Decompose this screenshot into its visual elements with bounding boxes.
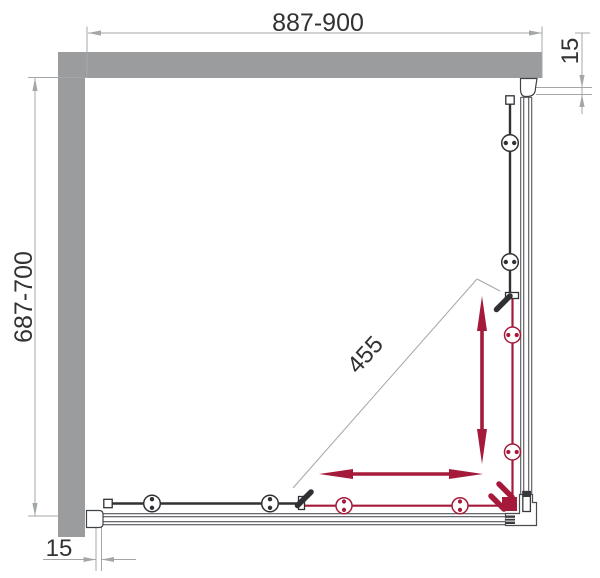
right-track <box>521 97 532 513</box>
vertical-slide-arrow <box>477 296 487 464</box>
roller <box>502 254 519 271</box>
roller <box>505 327 521 343</box>
roller <box>502 135 519 152</box>
roller <box>262 495 279 512</box>
dimension-profile-top-label: 15 <box>557 38 584 65</box>
roller <box>452 498 468 514</box>
right-door-handle-open <box>497 293 519 310</box>
left-wall <box>58 52 85 537</box>
bottom-door-handle-open <box>298 492 312 510</box>
horizontal-slide-arrow <box>319 469 483 479</box>
wall-profile-bottom <box>87 511 104 528</box>
dimension-diagonal <box>293 279 500 488</box>
dimension-width-label: 887-900 <box>272 9 364 37</box>
roller <box>144 495 161 512</box>
roller <box>336 498 352 514</box>
top-wall <box>58 52 542 78</box>
dimension-diagonal-label: 455 <box>342 331 389 379</box>
technical-drawing: 887-900 687-700 15 15 455 <box>0 0 600 578</box>
right-fixed-panel <box>502 96 519 293</box>
bottom-fixed-panel <box>104 495 300 512</box>
bottom-track <box>101 514 507 525</box>
right-sliding-door <box>499 296 521 504</box>
dimension-depth-label: 687-700 <box>10 251 38 343</box>
bottom-sliding-door <box>302 496 504 514</box>
dimension-profile-bottom-label: 15 <box>46 535 73 562</box>
walls <box>58 52 542 537</box>
door-handle <box>499 484 512 497</box>
wall-profile-top <box>521 79 538 97</box>
roller <box>505 444 521 460</box>
